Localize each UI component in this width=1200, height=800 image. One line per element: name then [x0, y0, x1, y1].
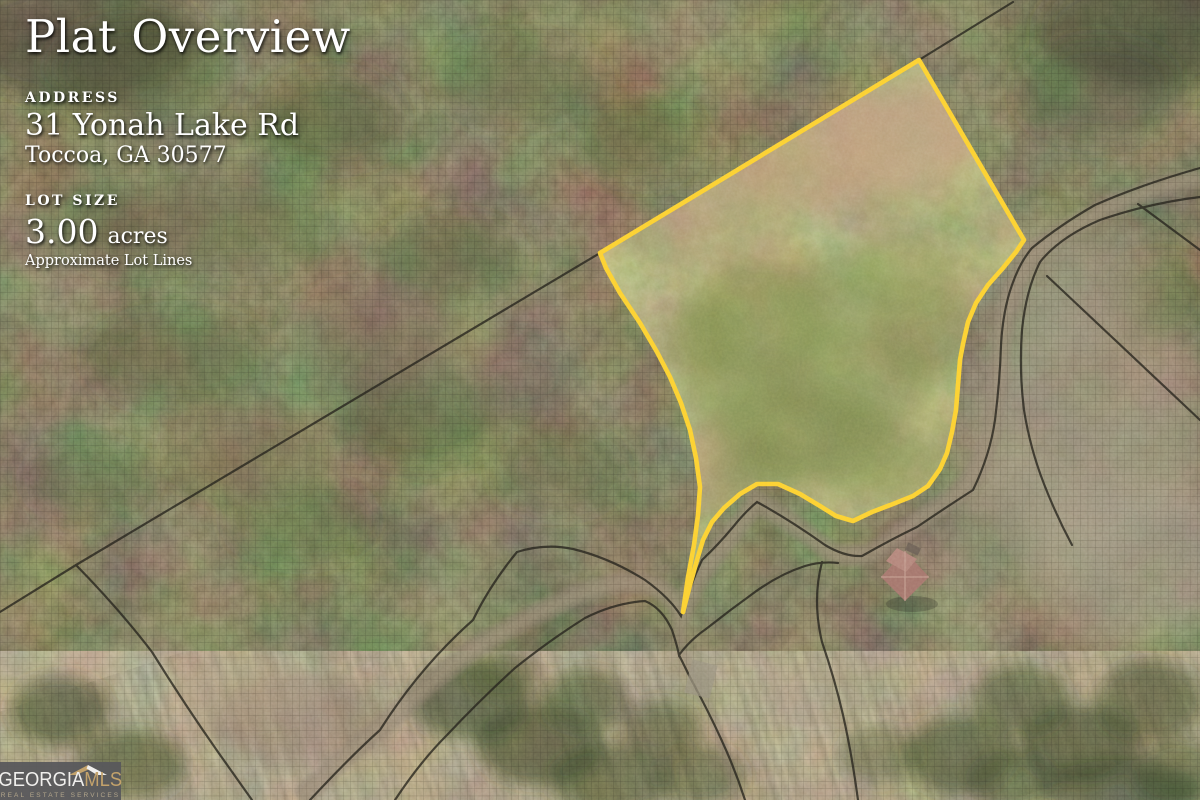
lot-size-label: LOT SIZE [25, 193, 351, 209]
georgia-mls-logo: GEORGIAMLS REAL ESTATE SERVICES [0, 762, 121, 800]
address-city: Toccoa, GA 30577 [25, 143, 351, 169]
address-label: ADDRESS [25, 90, 351, 106]
address-street: 31 Yonah Lake Rd [25, 109, 351, 144]
logo-brand-primary: GEORGIA [0, 770, 85, 790]
plat-overview-page: Plat Overview ADDRESS 31 Yonah Lake Rd T… [0, 0, 1200, 800]
page-title: Plat Overview [25, 12, 351, 62]
info-overlay: Plat Overview ADDRESS 31 Yonah Lake Rd T… [25, 12, 351, 269]
lot-size-row: 3.00 acres [25, 212, 351, 251]
logo-tagline: REAL ESTATE SERVICES [1, 792, 120, 799]
lot-lines-note: Approximate Lot Lines [25, 253, 351, 269]
logo-brand-secondary: MLS [85, 770, 123, 790]
lot-size-unit: acres [107, 224, 167, 249]
logo-wordmark: GEORGIAMLS [0, 770, 122, 790]
lot-size-value: 3.00 [25, 212, 98, 251]
